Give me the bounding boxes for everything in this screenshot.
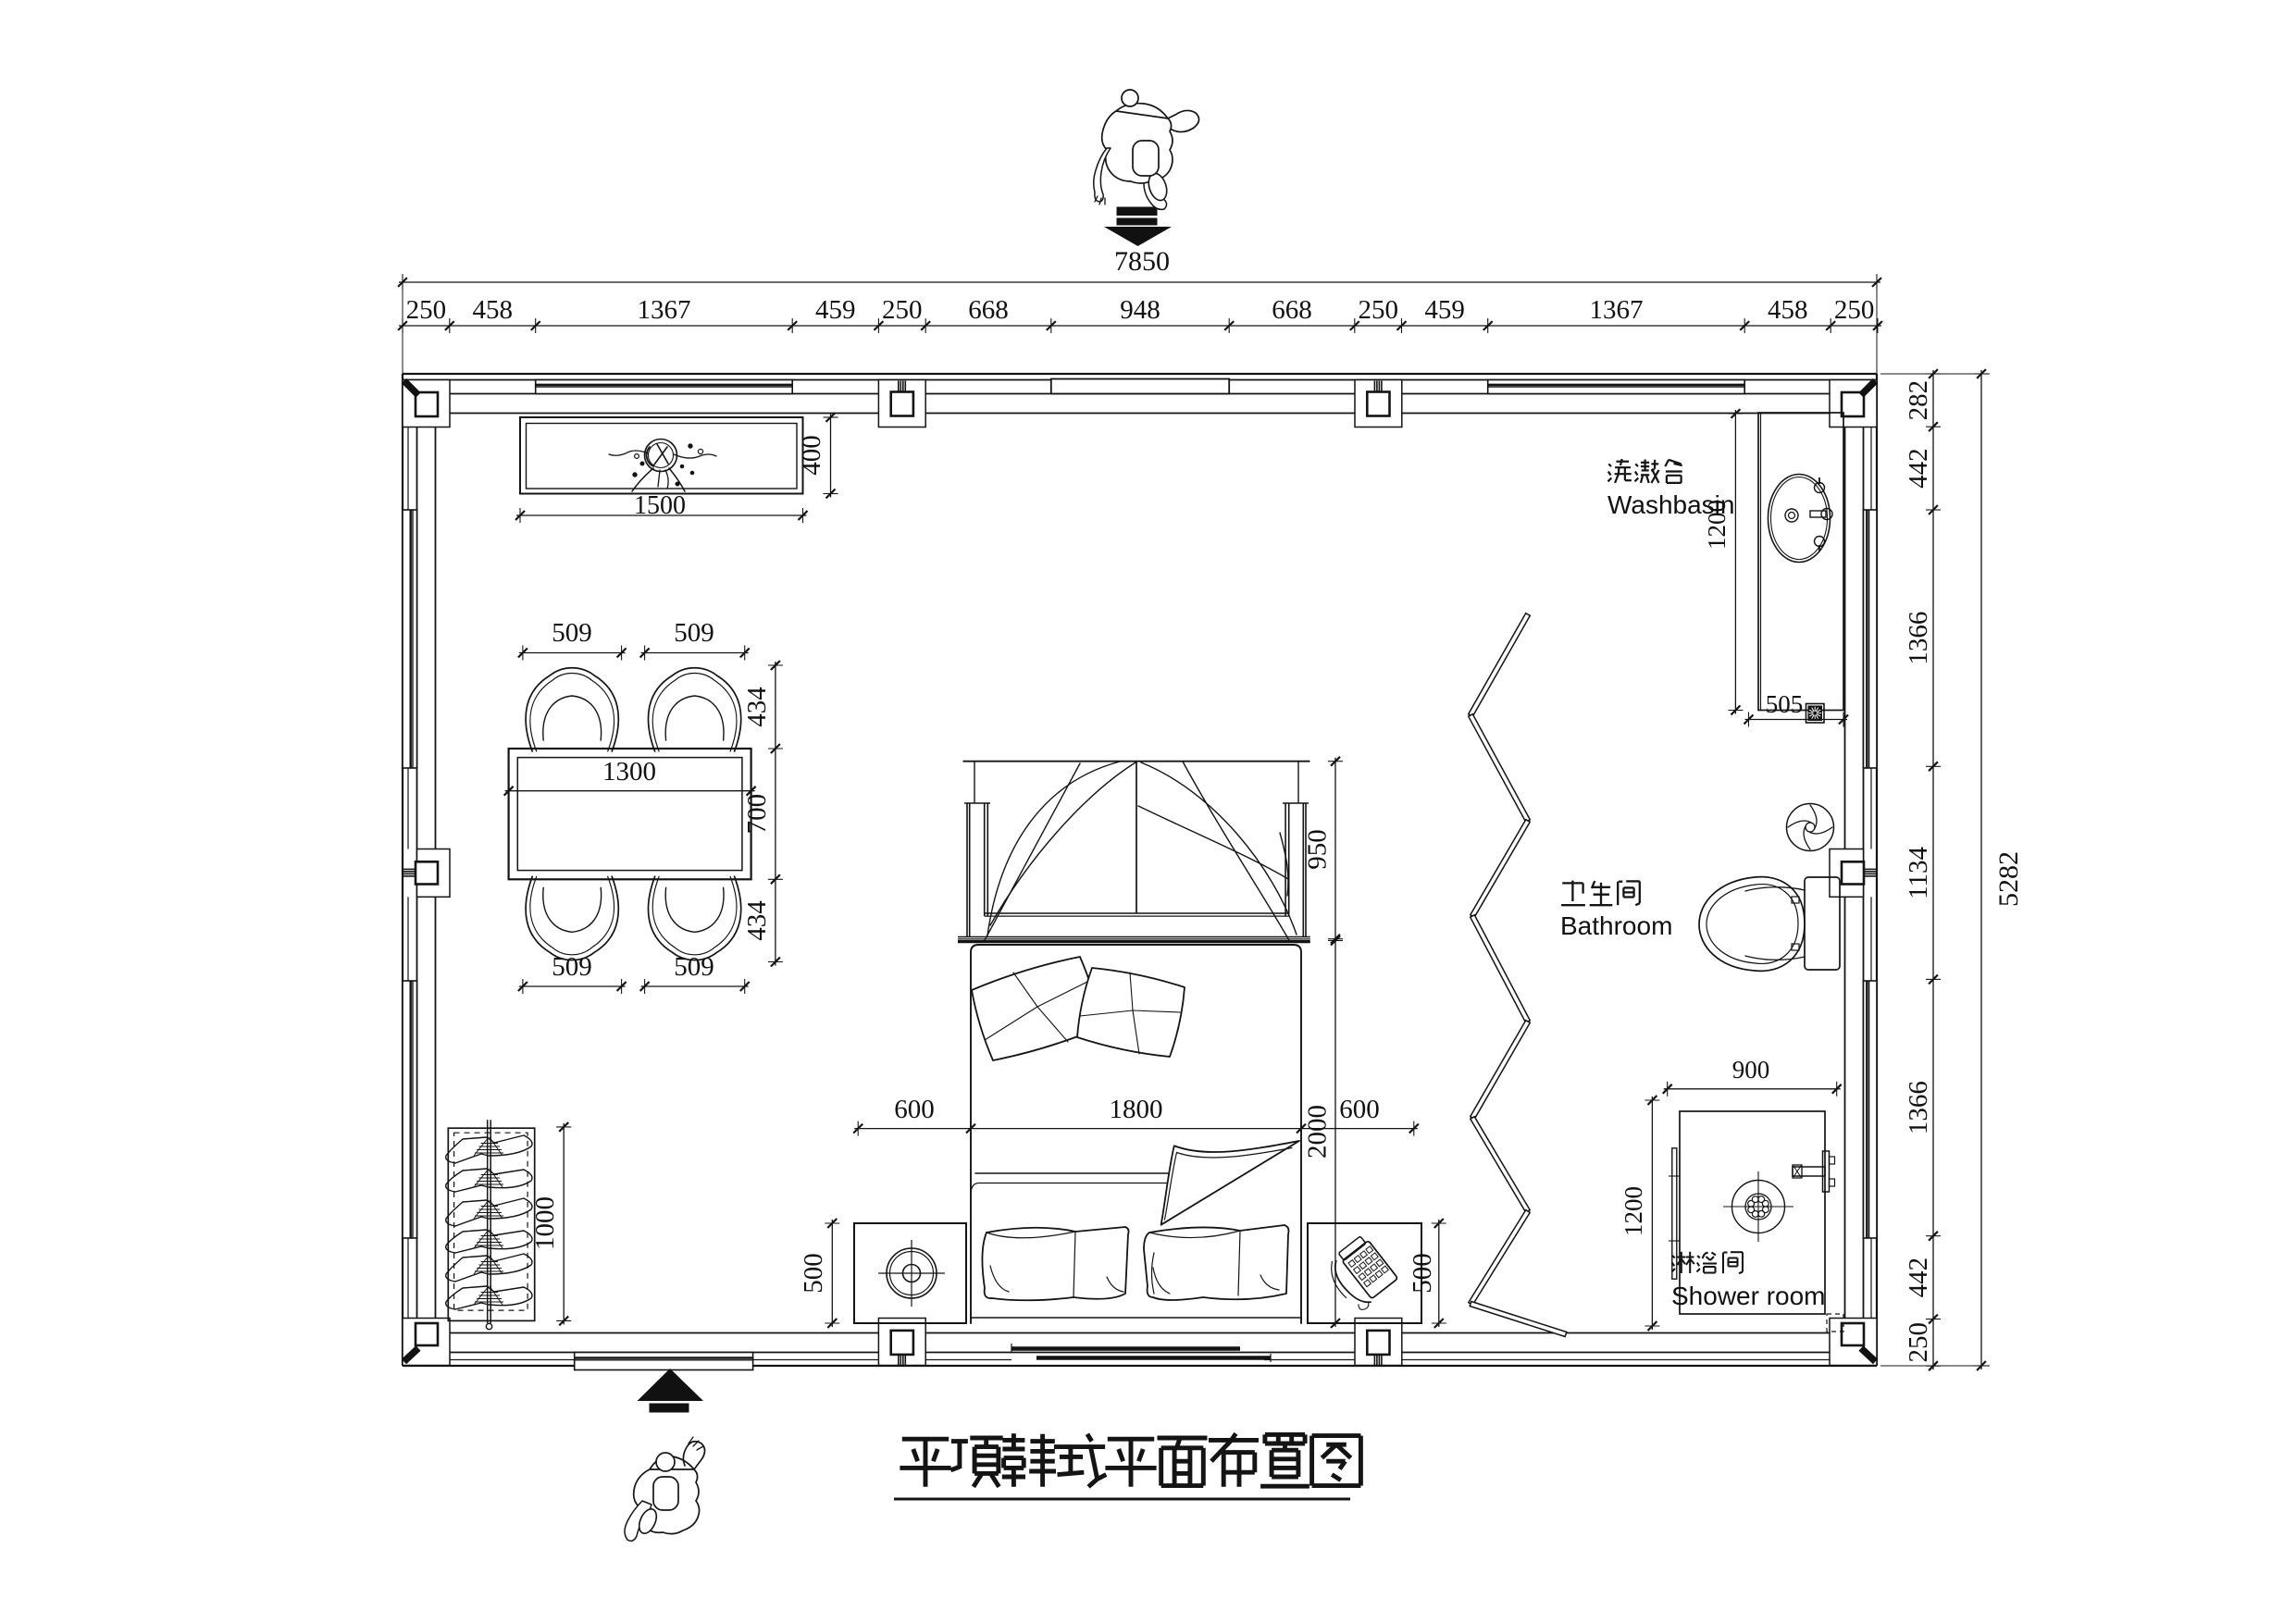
svg-text:Washbasin: Washbasin: [1607, 490, 1734, 519]
svg-text:1200: 1200: [1620, 1186, 1647, 1236]
svg-text:459: 459: [815, 295, 856, 325]
svg-text:509: 509: [552, 618, 592, 648]
svg-text:2000: 2000: [1303, 1105, 1333, 1158]
svg-text:950: 950: [1303, 829, 1333, 870]
svg-text:282: 282: [1904, 380, 1933, 421]
svg-text:900: 900: [1732, 1056, 1770, 1084]
svg-text:668: 668: [968, 295, 1009, 325]
svg-text:442: 442: [1904, 448, 1933, 488]
svg-text:1366: 1366: [1904, 612, 1933, 665]
svg-text:434: 434: [742, 900, 772, 941]
svg-text:600: 600: [894, 1095, 935, 1124]
svg-text:Shower room: Shower room: [1671, 1282, 1826, 1310]
svg-text:434: 434: [742, 687, 772, 727]
svg-text:1000: 1000: [530, 1196, 560, 1250]
svg-text:1300: 1300: [602, 757, 656, 787]
svg-text:948: 948: [1120, 295, 1160, 325]
svg-text:600: 600: [1339, 1095, 1380, 1124]
svg-text:458: 458: [1768, 295, 1808, 325]
svg-text:250: 250: [1358, 295, 1398, 325]
svg-text:1366: 1366: [1904, 1081, 1933, 1134]
svg-text:7850: 7850: [1114, 246, 1170, 277]
svg-text:1134: 1134: [1904, 846, 1933, 898]
svg-text:1367: 1367: [638, 295, 691, 325]
svg-text:5282: 5282: [1993, 851, 2024, 907]
svg-text:505: 505: [1766, 690, 1804, 718]
svg-text:250: 250: [882, 295, 923, 325]
svg-text:250: 250: [406, 295, 447, 325]
svg-text:500: 500: [799, 1253, 828, 1294]
svg-text:250: 250: [1904, 1322, 1933, 1363]
svg-text:509: 509: [674, 618, 714, 648]
svg-text:442: 442: [1904, 1258, 1933, 1298]
svg-text:500: 500: [1408, 1253, 1437, 1294]
svg-text:1367: 1367: [1590, 295, 1644, 325]
svg-text:400: 400: [797, 435, 826, 476]
svg-text:250: 250: [1834, 295, 1875, 325]
svg-text:509: 509: [674, 952, 714, 982]
svg-text:1500: 1500: [634, 491, 686, 520]
svg-text:668: 668: [1272, 295, 1312, 325]
svg-text:700: 700: [742, 794, 772, 835]
svg-text:1800: 1800: [1110, 1095, 1163, 1124]
svg-text:458: 458: [472, 295, 513, 325]
svg-text:509: 509: [552, 952, 592, 982]
svg-text:459: 459: [1424, 295, 1465, 325]
svg-text:Bathroom: Bathroom: [1560, 911, 1672, 940]
